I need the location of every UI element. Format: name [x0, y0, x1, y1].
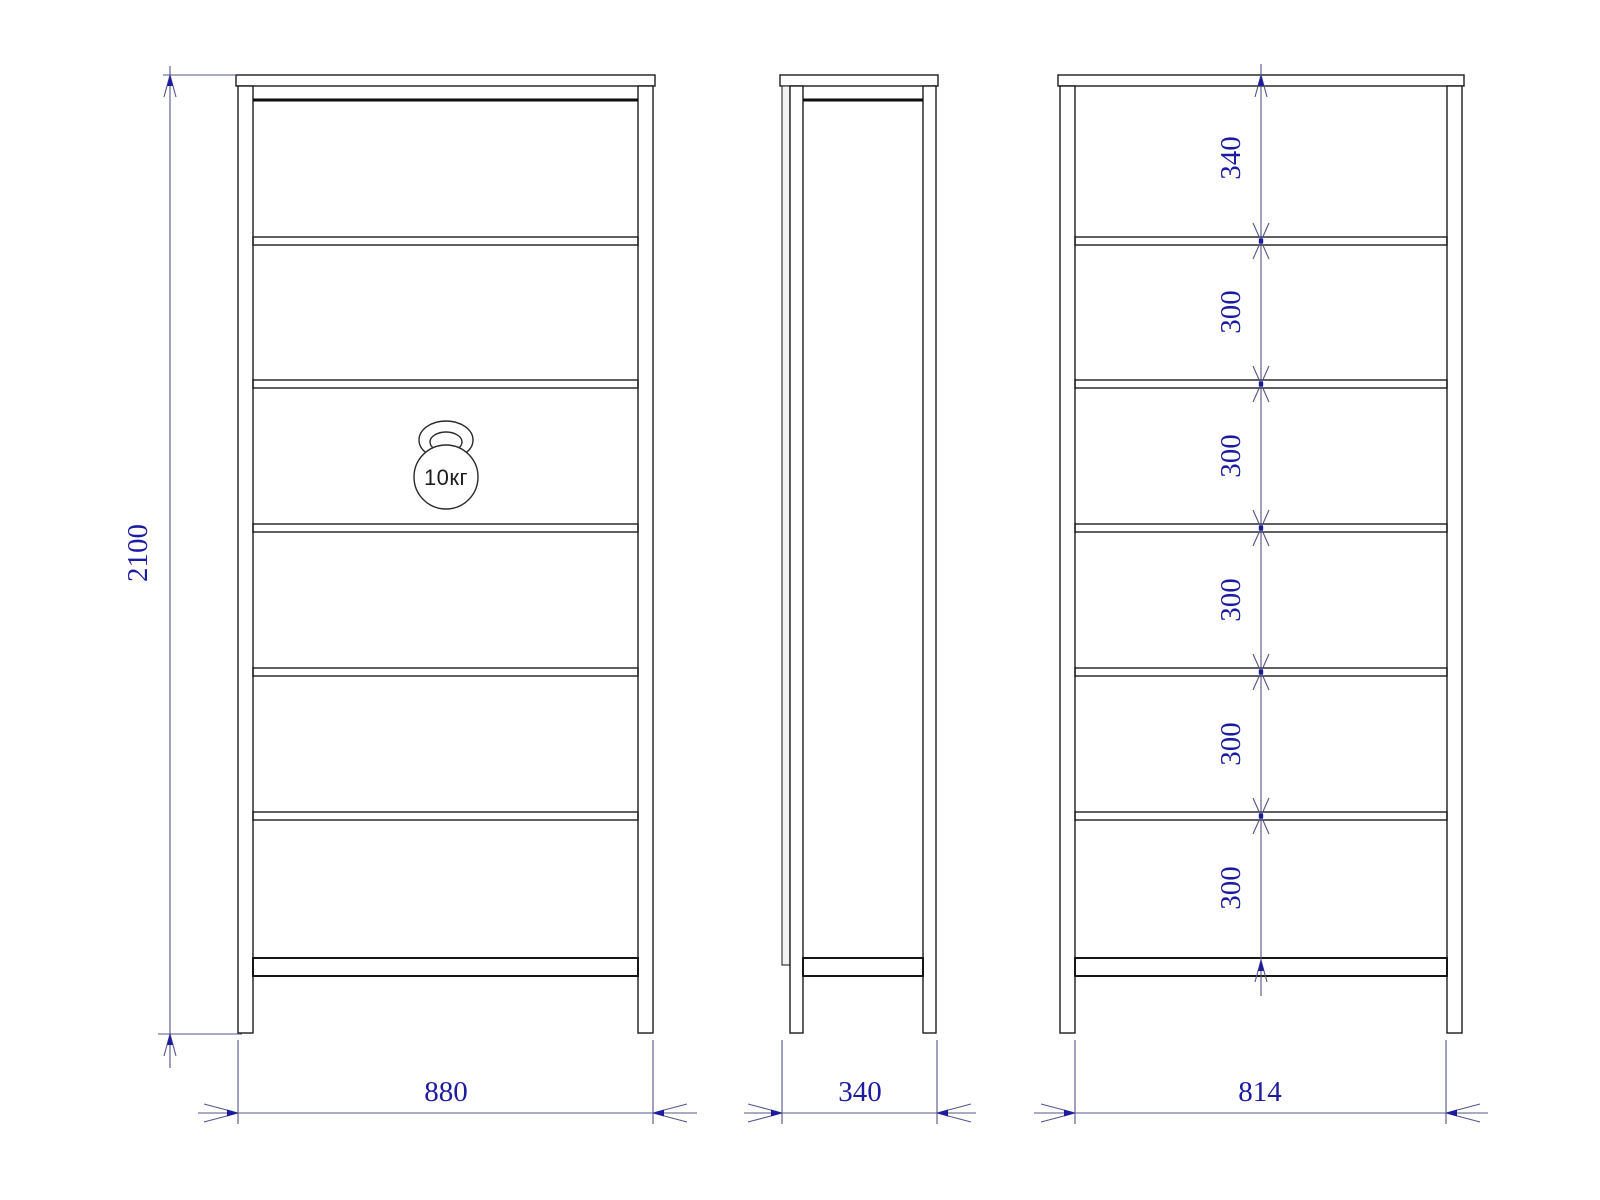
- shelving-unit-drawing: 10кг 2100 880: [0, 0, 1600, 1200]
- dimension-depth: 340: [744, 1040, 976, 1124]
- front-top-board: [236, 75, 655, 86]
- load-capacity-label: 10кг: [424, 465, 468, 490]
- depth-value: 340: [838, 1076, 882, 1108]
- shelf-spacing-value-6: 300: [1215, 866, 1247, 910]
- dimension-inner-width: 814: [1034, 1040, 1488, 1124]
- front-bottom-rail: [253, 958, 638, 976]
- overall-width-value: 880: [424, 1076, 468, 1108]
- side-top-board: [780, 75, 938, 86]
- shelf-spacing-value-2: 300: [1215, 290, 1247, 334]
- side-view: [780, 75, 938, 1033]
- side-rear-leg: [790, 86, 803, 1033]
- inner-width-value: 814: [1238, 1076, 1282, 1108]
- spacing-left-panel: [1060, 86, 1075, 1033]
- technical-drawing-canvas: 10кг 2100 880: [0, 0, 1600, 1200]
- front-shelf-4: [253, 668, 638, 676]
- shelf-spacing-value-3: 300: [1215, 434, 1247, 478]
- overall-height-value: 2100: [122, 524, 154, 582]
- dimension-overall-width: 880: [198, 1040, 697, 1124]
- kettlebell-icon: 10кг: [414, 421, 478, 509]
- spacing-right-panel: [1447, 86, 1462, 1033]
- front-shelf-2: [253, 380, 638, 388]
- front-right-panel: [638, 86, 653, 1033]
- side-bottom-rail: [803, 958, 923, 976]
- front-shelf-1: [253, 237, 638, 245]
- side-back-panel: [782, 86, 790, 965]
- side-front-leg: [923, 86, 936, 1033]
- dimension-shelf-spacing-chain: 340 300 300 300 300 300: [1215, 64, 1269, 996]
- front-view: 10кг: [236, 75, 655, 1033]
- dimension-overall-height: 2100: [122, 66, 242, 1068]
- shelf-spacing-value-4: 300: [1215, 578, 1247, 622]
- front-shelf-3: [253, 524, 638, 532]
- front-shelf-5: [253, 812, 638, 820]
- front-left-panel: [238, 86, 253, 1033]
- shelf-spacing-value-5: 300: [1215, 722, 1247, 766]
- shelf-spacing-value-1: 340: [1215, 136, 1247, 180]
